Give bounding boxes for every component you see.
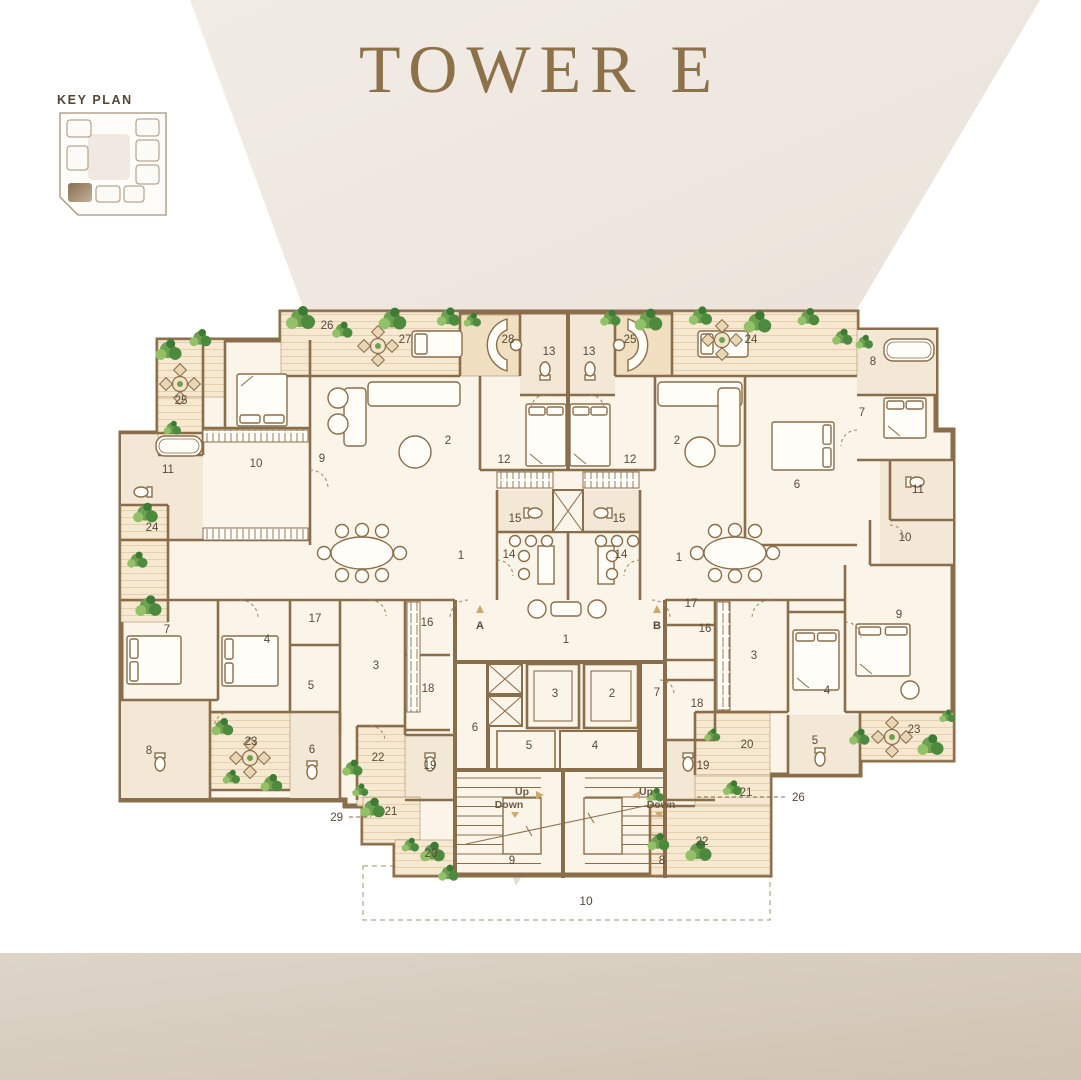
room-label: 7	[164, 624, 170, 636]
room-label: 8	[870, 356, 876, 368]
site-area-label: 10	[579, 894, 593, 908]
core-letter-label: B	[653, 620, 661, 632]
room-label: 8	[146, 745, 152, 757]
stair-direction-label: Up	[639, 786, 653, 798]
room-label: 1	[458, 550, 464, 562]
room-label: 6	[794, 479, 800, 491]
room-label: 3	[552, 688, 558, 700]
room-label: 11	[162, 464, 174, 476]
room-label: 9	[896, 609, 902, 621]
room-label: 22	[372, 752, 385, 764]
room-label: 9	[319, 453, 325, 465]
room-label: 18	[422, 683, 435, 695]
stair-direction-label: Down	[495, 799, 524, 811]
floorplan-canvas: TOWER E KEY PLAN	[0, 0, 1081, 1080]
room-label: 9	[509, 855, 515, 867]
room-label: 2	[445, 435, 451, 447]
room-label: 18	[691, 698, 704, 710]
room-label: 6	[472, 722, 478, 734]
room-label: 14	[615, 549, 628, 561]
room-label: 24	[745, 334, 758, 346]
stair-direction-label: Up	[515, 786, 529, 798]
room-label: 25	[175, 395, 188, 407]
room-label: 13	[543, 346, 556, 358]
room-label: 16	[699, 623, 712, 635]
room-label: 15	[613, 513, 626, 525]
room-label: 1	[676, 552, 682, 564]
room-label: 23	[245, 736, 258, 748]
room-label: 26	[792, 792, 805, 804]
room-label: 20	[741, 739, 754, 751]
room-label: 21	[385, 806, 398, 818]
room-label: 7	[859, 407, 865, 419]
room-label: 27	[399, 334, 412, 346]
key-plan-center-block	[88, 134, 130, 180]
room-label: 14	[503, 549, 516, 561]
key-plan-label: KEY PLAN	[57, 93, 133, 107]
room-label: 19	[424, 760, 437, 772]
room-label: 10	[250, 458, 263, 470]
stair-direction-label: Down	[647, 799, 676, 811]
room-label: 3	[373, 660, 379, 672]
room-label: 22	[696, 836, 709, 848]
room-label: 19	[697, 760, 710, 772]
room-label: 29	[330, 812, 343, 824]
room-label: 8	[659, 855, 665, 867]
room-label: 24	[146, 522, 159, 534]
room-label: 21	[740, 787, 753, 799]
room-label: 2	[674, 435, 680, 447]
room-label: 3	[751, 650, 757, 662]
room-label: 20	[425, 848, 438, 860]
room-label: 26	[321, 320, 334, 332]
key-plan-highlighted-tower	[68, 183, 92, 202]
room-label: 16	[421, 617, 434, 629]
room-label: 7	[654, 687, 660, 699]
room-label: 4	[824, 685, 831, 697]
room-label: 6	[309, 744, 315, 756]
room-label: 13	[583, 346, 596, 358]
room-label: 17	[309, 613, 322, 625]
room-label: 5	[526, 740, 532, 752]
room-label: 10	[899, 532, 912, 544]
tower-e-floorplan-page: TOWER E KEY PLAN	[0, 0, 1081, 1080]
room-label: 11	[912, 484, 924, 496]
room-label: 1	[563, 634, 569, 646]
room-label: 5	[308, 680, 314, 692]
room-label: 23	[908, 724, 921, 736]
page-title: TOWER E	[359, 31, 721, 107]
room-label: 4	[264, 634, 271, 646]
room-label: 15	[509, 513, 522, 525]
room-label: 4	[592, 740, 599, 752]
room-label: 2	[609, 688, 615, 700]
room-label: 17	[685, 598, 698, 610]
room-label: 12	[624, 454, 637, 466]
lift-lobby	[560, 731, 638, 769]
room-label: 5	[812, 735, 818, 747]
core-letter-label: A	[476, 620, 484, 632]
room-label: 12	[498, 454, 511, 466]
room-label: 28	[502, 334, 515, 346]
background-bottom-band	[0, 953, 1081, 1080]
room-label: 25	[624, 334, 637, 346]
